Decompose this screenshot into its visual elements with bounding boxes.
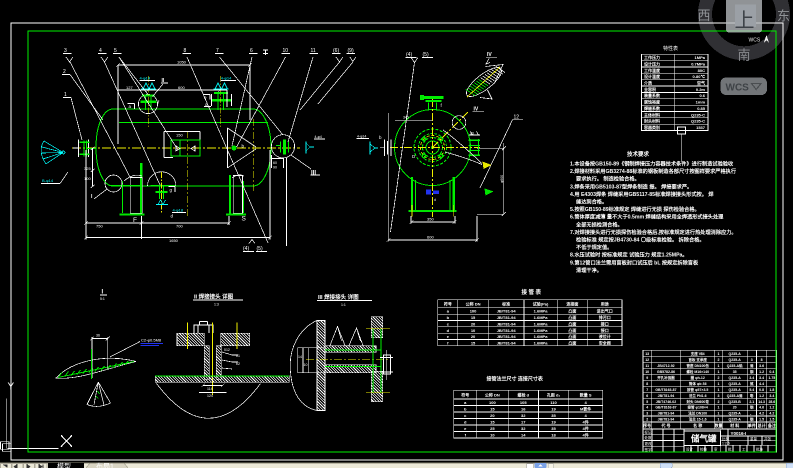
svg-text:1.8: 1.8 bbox=[769, 388, 774, 392]
svg-text:Q235-A: Q235-A bbox=[729, 352, 742, 356]
svg-text:接 管 表: 接 管 表 bbox=[522, 288, 542, 296]
svg-text:δ12: δ12 bbox=[224, 348, 230, 352]
svg-text:0.8: 0.8 bbox=[759, 388, 764, 392]
svg-text:凸面: 凸面 bbox=[568, 308, 576, 314]
svg-text:Q235-A焉: Q235-A焉 bbox=[727, 393, 743, 398]
svg-text:钢: 钢 bbox=[750, 369, 754, 374]
svg-text:封头 DN600弯: 封头 DN600弯 bbox=[687, 399, 710, 404]
svg-text:2.焊接材料采用GB3274-88标准的钢板制造各部尺寸按图: 2.焊接材料采用GB3274-88标准的钢板制造各部尺寸按图样要求严格执行 bbox=[570, 167, 737, 175]
svg-text:350: 350 bbox=[427, 217, 434, 222]
svg-text:西: 西 bbox=[697, 8, 710, 23]
svg-text:共张: 共张 bbox=[764, 436, 772, 441]
svg-text:要求执行。 制造检验合格。: 要求执行。 制造检验合格。 bbox=[576, 175, 640, 183]
svg-text:钢: 钢 bbox=[750, 405, 754, 410]
svg-text:S: S bbox=[242, 216, 247, 223]
svg-text:100: 100 bbox=[489, 400, 496, 405]
svg-text:1.6MPa: 1.6MPa bbox=[534, 328, 549, 333]
svg-text:1.6MPa: 1.6MPa bbox=[534, 340, 549, 345]
svg-text:南: 南 bbox=[737, 48, 750, 63]
svg-text:凸面: 凸面 bbox=[568, 333, 576, 339]
svg-text:16: 16 bbox=[521, 407, 526, 412]
svg-text:特性表: 特性表 bbox=[663, 45, 678, 52]
svg-text:1.2: 1.2 bbox=[759, 394, 764, 398]
svg-text:Q235-A焰: Q235-A焰 bbox=[727, 363, 743, 368]
svg-text:JB/T4746-02: JB/T4746-02 bbox=[656, 400, 676, 404]
svg-text:数量 S: 数量 S bbox=[579, 391, 592, 397]
svg-text:100: 100 bbox=[470, 309, 477, 314]
svg-text:M套件: M套件 bbox=[580, 406, 591, 412]
svg-text:1: 1 bbox=[718, 406, 720, 410]
svg-text:1: 1 bbox=[718, 418, 720, 422]
svg-text:Q235-A: Q235-A bbox=[729, 388, 742, 392]
svg-text:工作压力: 工作压力 bbox=[644, 54, 660, 60]
svg-text:法兰 DN100: 法兰 DN100 bbox=[688, 411, 707, 416]
svg-text:114: 114 bbox=[207, 387, 213, 391]
svg-text:11: 11 bbox=[311, 48, 316, 54]
svg-text:14: 14 bbox=[521, 433, 526, 438]
svg-text:15: 15 bbox=[471, 340, 476, 345]
svg-text:9.第12管口法兰需用盲板封口试压后 bL: 9.第12管口法兰需用盲板封口试压后 bL 按规定拆除盲板 bbox=[570, 258, 699, 266]
svg-text:钢: 钢 bbox=[750, 417, 754, 422]
svg-text:C2-φ0.5M8: C2-φ0.5M8 bbox=[141, 338, 162, 343]
svg-text:接管法兰尺寸 连接尺寸表: 接管法兰尺寸 连接尺寸表 bbox=[486, 376, 544, 383]
svg-text:备注: 备注 bbox=[767, 422, 776, 428]
svg-text:1.6MPa: 1.6MPa bbox=[534, 315, 549, 320]
svg-text:容器类别: 容器类别 bbox=[643, 124, 660, 130]
svg-text:2: 2 bbox=[718, 358, 720, 362]
svg-text:Q235-C: Q235-C bbox=[691, 112, 705, 117]
svg-text:WCS: WCS bbox=[749, 38, 761, 44]
svg-text:更改: 更改 bbox=[645, 441, 653, 446]
svg-text:嘭: 嘭 bbox=[750, 393, 754, 398]
svg-text:GB/T8163-87: GB/T8163-87 bbox=[655, 388, 676, 392]
svg-text:d: d bbox=[434, 198, 436, 202]
svg-text:清理干净。: 清理干净。 bbox=[576, 266, 602, 274]
svg-text:32: 32 bbox=[521, 413, 526, 418]
svg-text:II 焊接接头 详图: II 焊接接头 详图 bbox=[194, 293, 234, 301]
svg-text:Q235-A: Q235-A bbox=[729, 418, 742, 422]
svg-text:110: 110 bbox=[550, 400, 557, 405]
svg-text:15: 15 bbox=[490, 420, 495, 425]
svg-text:4-φ14: 4-φ14 bbox=[357, 135, 366, 139]
svg-text:JB/T81-94: JB/T81-94 bbox=[497, 315, 517, 320]
svg-text:12: 12 bbox=[645, 358, 649, 362]
svg-text:Q235-B: Q235-B bbox=[729, 400, 742, 404]
svg-text:液位计: 液位计 bbox=[599, 333, 611, 339]
svg-text:设计: 设计 bbox=[686, 447, 694, 452]
svg-text:9: 9 bbox=[646, 376, 648, 380]
svg-text:处数: 处数 bbox=[645, 435, 653, 440]
svg-text:35: 35 bbox=[733, 370, 737, 374]
svg-text:1.5: 1.5 bbox=[759, 418, 764, 422]
svg-text:1: 1 bbox=[718, 364, 720, 368]
svg-text:(4): (4) bbox=[243, 246, 249, 252]
svg-text:20: 20 bbox=[490, 413, 495, 418]
svg-text:(5): (5) bbox=[423, 52, 429, 58]
svg-text:10: 10 bbox=[645, 370, 649, 374]
svg-text:6.筒体厚度减薄 量不大于0.5mm 焊缝结构采用全焊透形式: 6.筒体厚度减薄 量不大于0.5mm 焊缝结构采用全焊透形式接头处理 bbox=[570, 213, 724, 221]
svg-text:3: 3 bbox=[751, 358, 753, 362]
svg-text:储气罐: 储气罐 bbox=[690, 434, 717, 444]
svg-text:1: 1 bbox=[64, 92, 67, 98]
svg-text:2: 2 bbox=[718, 400, 720, 404]
svg-text:凸面: 凸面 bbox=[568, 327, 576, 333]
svg-text:3.焊条采用GB5103-87型焊条制造 振。 焊: 3.焊条采用GB5103-87型焊条制造 振。 焊接要求严。 bbox=[570, 182, 692, 190]
svg-text:支座 Ⅶ4: 支座 Ⅶ4 bbox=[690, 351, 705, 356]
svg-text:JB/T81-94: JB/T81-94 bbox=[497, 334, 517, 339]
svg-text:III: III bbox=[311, 171, 316, 177]
svg-text:1650: 1650 bbox=[169, 238, 179, 243]
svg-text:JB/T81-94: JB/T81-94 bbox=[497, 328, 517, 333]
svg-text:36: 36 bbox=[96, 334, 100, 338]
svg-text:1: 1 bbox=[718, 412, 720, 416]
svg-text:腐蚀裕度: 腐蚀裕度 bbox=[644, 99, 661, 105]
svg-text:全容积: 全容积 bbox=[643, 86, 656, 92]
svg-text:(9): (9) bbox=[348, 48, 354, 54]
svg-text:10: 10 bbox=[490, 433, 495, 438]
svg-text:校核: 校核 bbox=[700, 447, 708, 452]
svg-text:1050: 1050 bbox=[177, 60, 187, 65]
svg-text:5:1: 5:1 bbox=[100, 297, 105, 301]
svg-text:4.6: 4.6 bbox=[759, 406, 764, 410]
svg-text:φ600: φ600 bbox=[500, 175, 504, 183]
svg-text:0.2m: 0.2m bbox=[696, 87, 706, 92]
svg-text:1.2: 1.2 bbox=[769, 406, 774, 410]
svg-text:(6): (6) bbox=[333, 48, 339, 54]
svg-text:JB/T81-94: JB/T81-94 bbox=[658, 412, 675, 416]
svg-text:7: 7 bbox=[646, 388, 648, 392]
svg-text:4件: 4件 bbox=[583, 432, 589, 438]
svg-text:0.7MPa: 0.7MPa bbox=[691, 61, 706, 66]
svg-text:设计压力: 设计压力 bbox=[644, 60, 660, 66]
svg-text:工: 工 bbox=[742, 448, 746, 452]
svg-text:公称 DN: 公称 DN bbox=[466, 301, 481, 307]
svg-text:进出气口: 进出气口 bbox=[597, 308, 613, 314]
svg-text:1: 1 bbox=[718, 388, 720, 392]
svg-text:5: 5 bbox=[646, 400, 648, 404]
svg-text:GB/T8163-87: GB/T8163-87 bbox=[655, 406, 676, 410]
svg-text:17: 17 bbox=[521, 420, 526, 425]
svg-text:1mm: 1mm bbox=[696, 100, 706, 105]
svg-text:13: 13 bbox=[645, 352, 649, 356]
svg-text:5.按照GB150-89标准规定 焊缝进行无损 探伤检验合格: 5.按照GB150-89标准规定 焊缝进行无损 探伤检验合格。 bbox=[570, 205, 700, 213]
svg-text:不低于规定值。: 不低于规定值。 bbox=[576, 243, 612, 251]
svg-text:孔距 d₁: 孔距 d₁ bbox=[547, 391, 561, 397]
svg-text:325: 325 bbox=[84, 166, 91, 171]
svg-text:Q235-A: Q235-A bbox=[729, 376, 742, 380]
svg-text:比例: 比例 bbox=[722, 436, 730, 441]
svg-text:重量: 重量 bbox=[750, 436, 758, 441]
svg-text:6: 6 bbox=[646, 394, 648, 398]
svg-text:螺栓 d: 螺栓 d bbox=[517, 391, 529, 397]
svg-text:1.75: 1.75 bbox=[768, 376, 775, 380]
svg-text:接口: 接口 bbox=[601, 327, 609, 333]
svg-text:100: 100 bbox=[84, 176, 91, 181]
svg-text:8.水压试验时 按标准规定 试验压力 规定1.25MPa。: 8.水压试验时 按标准规定 试验压力 规定1.25MPa。 bbox=[570, 251, 688, 259]
svg-text:JB/T81-94: JB/T81-94 bbox=[497, 340, 517, 345]
svg-text:4-φ18: 4-φ18 bbox=[173, 208, 184, 213]
svg-text:35: 35 bbox=[551, 426, 556, 431]
svg-text:JB/T81-94: JB/T81-94 bbox=[658, 394, 675, 398]
svg-text:1:2.5: 1:2.5 bbox=[722, 442, 730, 446]
svg-text:开孔补强圈: 开孔补强圈 bbox=[657, 375, 675, 380]
svg-text:0.6: 0.6 bbox=[699, 93, 705, 98]
svg-text:20: 20 bbox=[471, 321, 476, 326]
svg-text:主体材料: 主体材料 bbox=[644, 111, 660, 117]
svg-text:4-φ14: 4-φ14 bbox=[221, 76, 232, 81]
svg-text:1.5: 1.5 bbox=[769, 418, 774, 422]
svg-text:0-80℃: 0-80℃ bbox=[693, 74, 706, 79]
svg-text:4: 4 bbox=[646, 406, 648, 410]
svg-text:105: 105 bbox=[520, 400, 527, 405]
svg-text:8: 8 bbox=[184, 48, 187, 54]
svg-text:19: 19 bbox=[551, 420, 556, 425]
svg-text:4.2: 4.2 bbox=[759, 412, 764, 416]
svg-text:15: 15 bbox=[471, 315, 476, 320]
svg-text:审: 审 bbox=[714, 447, 718, 452]
svg-text:全部无损检测合格。: 全部无损检测合格。 bbox=[575, 220, 623, 228]
svg-text:600: 600 bbox=[178, 85, 185, 90]
svg-text:3: 3 bbox=[646, 412, 648, 416]
svg-text:90: 90 bbox=[470, 132, 474, 136]
svg-text:上: 上 bbox=[735, 9, 755, 32]
svg-text:管座 DN100缶: 管座 DN100缶 bbox=[687, 363, 710, 368]
svg-text:JB/T81-94: JB/T81-94 bbox=[497, 321, 517, 326]
svg-text:1.6MPa: 1.6MPa bbox=[534, 309, 549, 314]
svg-text:凸面: 凸面 bbox=[568, 314, 576, 320]
svg-text:7: 7 bbox=[216, 48, 219, 54]
svg-text:2: 2 bbox=[718, 376, 720, 380]
svg-text:1: 1 bbox=[718, 382, 720, 386]
svg-text:单件: 单件 bbox=[748, 422, 756, 428]
svg-text:3: 3 bbox=[718, 394, 720, 398]
svg-text:用途: 用途 bbox=[600, 301, 609, 307]
svg-text:345: 345 bbox=[403, 116, 409, 120]
svg-text:Q235-C: Q235-C bbox=[691, 119, 705, 124]
svg-text:检验标准 规定按JB4730-84 〇级标准检验。: 检验标准 规定按JB4730-84 〇级标准检验。 拆除合格。 bbox=[576, 236, 705, 244]
svg-text:b1: b1 bbox=[236, 354, 240, 358]
svg-text:JB4712-92: JB4712-92 bbox=[657, 364, 674, 368]
svg-text:接口: 接口 bbox=[601, 320, 609, 326]
svg-text:35: 35 bbox=[551, 413, 556, 418]
svg-text:焉: 焉 bbox=[750, 363, 754, 368]
svg-text:代 号: 代 号 bbox=[660, 422, 670, 428]
svg-text:1: 1 bbox=[718, 352, 720, 356]
svg-text:Y0016-I: Y0016-I bbox=[731, 431, 747, 436]
svg-text:筒体 φb δ6: 筒体 φb δ6 bbox=[689, 381, 707, 386]
svg-text:150: 150 bbox=[176, 133, 183, 138]
svg-text:煞: 煞 bbox=[750, 381, 754, 386]
svg-text:4.2: 4.2 bbox=[769, 412, 774, 416]
svg-text:750: 750 bbox=[96, 224, 103, 229]
svg-text:2.1: 2.1 bbox=[749, 400, 754, 404]
svg-text:盲板 支承座: 盲板 支承座 bbox=[688, 357, 707, 362]
svg-text:装量系数: 装量系数 bbox=[643, 92, 660, 98]
svg-text:600: 600 bbox=[427, 235, 434, 240]
svg-text:10: 10 bbox=[471, 328, 476, 333]
svg-text:数量: 数量 bbox=[714, 422, 723, 428]
svg-text:11: 11 bbox=[645, 364, 649, 368]
svg-text:批准: 批准 bbox=[756, 447, 764, 452]
svg-text:10: 10 bbox=[304, 363, 308, 367]
svg-text:螺栓 M16×140: 螺栓 M16×140 bbox=[686, 369, 709, 374]
svg-text:Q235-A: Q235-A bbox=[729, 382, 742, 386]
svg-text:排污口: 排污口 bbox=[599, 314, 611, 320]
svg-text:(4): (4) bbox=[406, 52, 412, 58]
svg-text:90: 90 bbox=[273, 166, 277, 170]
svg-text:标准: 标准 bbox=[501, 301, 510, 307]
svg-text:700: 700 bbox=[176, 224, 183, 229]
svg-text:技术要求: 技术要求 bbox=[627, 150, 650, 158]
svg-text:公称 DN: 公称 DN bbox=[485, 391, 500, 397]
svg-text:19: 19 bbox=[551, 407, 556, 412]
svg-text:4-φ4: 4-φ4 bbox=[315, 135, 322, 139]
svg-text:0.85: 0.85 bbox=[697, 106, 706, 111]
svg-text:3.6: 3.6 bbox=[759, 364, 764, 368]
svg-text:60: 60 bbox=[273, 161, 277, 165]
svg-text:圈 φh-12: 圈 φh-12 bbox=[691, 375, 705, 380]
svg-text:凸面: 凸面 bbox=[568, 320, 576, 326]
svg-text:工作温度: 工作温度 bbox=[644, 67, 661, 73]
svg-text:标记: 标记 bbox=[645, 429, 653, 434]
svg-text:焊缝系数: 焊缝系数 bbox=[644, 105, 660, 111]
svg-text:连接面: 连接面 bbox=[566, 301, 578, 307]
svg-text:法兰 15-1.6: 法兰 15-1.6 bbox=[689, 417, 707, 422]
svg-text:东: 东 bbox=[777, 9, 790, 24]
svg-text:B-φ14: B-φ14 bbox=[42, 178, 54, 183]
svg-text:3.4: 3.4 bbox=[769, 394, 774, 398]
svg-text:14.3: 14.3 bbox=[758, 400, 765, 404]
svg-text:3.4: 3.4 bbox=[749, 376, 754, 380]
svg-text:安全阀: 安全阀 bbox=[599, 339, 611, 345]
svg-text:124: 124 bbox=[207, 394, 213, 398]
svg-text:8: 8 bbox=[761, 358, 763, 362]
svg-text:4.用 E4303焊条 焊缝采用GB5117-85标准焊接接: 4.用 E4303焊条 焊缝采用GB5117-85标准焊接接头形式按。 焊 bbox=[570, 190, 714, 198]
svg-text:2: 2 bbox=[646, 418, 648, 422]
svg-text:JB/T81-94: JB/T81-94 bbox=[658, 418, 675, 422]
svg-text:介质: 介质 bbox=[643, 80, 652, 86]
svg-text:名 称: 名 称 bbox=[693, 422, 702, 428]
svg-text:批: 批 bbox=[728, 447, 732, 452]
svg-text:设计温度: 设计温度 bbox=[644, 73, 661, 79]
svg-text:总计: 总计 bbox=[758, 422, 766, 428]
svg-text:10: 10 bbox=[283, 48, 289, 54]
svg-text:4-φ14: 4-φ14 bbox=[140, 76, 151, 81]
svg-text:接管 φ57×3.5: 接管 φ57×3.5 bbox=[687, 387, 708, 392]
svg-text:5: 5 bbox=[114, 48, 117, 54]
svg-text:Y: Y bbox=[8, 382, 15, 393]
svg-text:试验(Pa): 试验(Pa) bbox=[533, 301, 549, 307]
svg-text:4件: 4件 bbox=[583, 425, 589, 431]
svg-text:(5): (5) bbox=[257, 246, 263, 252]
svg-text:1.本设备按GB150-89《钢制焊接压力容器技术条件》进行: 1.本设备按GB150-89《钢制焊接压力容器技术条件》进行制造试验验收 bbox=[570, 160, 734, 168]
svg-text:JB/T81-94: JB/T81-94 bbox=[497, 309, 517, 314]
svg-text:20: 20 bbox=[471, 334, 476, 339]
svg-text:4.4: 4.4 bbox=[759, 382, 764, 386]
svg-text:2: 2 bbox=[63, 69, 66, 75]
svg-text:WCS: WCS bbox=[726, 83, 750, 94]
svg-text:缝达到合格。: 缝达到合格。 bbox=[576, 198, 607, 206]
svg-text:法兰 PN1.6: 法兰 PN1.6 bbox=[689, 393, 707, 398]
svg-text:25: 25 bbox=[490, 426, 495, 431]
svg-text:1:1: 1:1 bbox=[341, 303, 346, 307]
svg-text:6: 6 bbox=[250, 48, 253, 54]
svg-text:b2: b2 bbox=[236, 362, 240, 366]
svg-text:1.6MPa: 1.6MPa bbox=[534, 321, 549, 326]
svg-text:1.2: 1.2 bbox=[759, 370, 764, 374]
svg-text:0.4: 0.4 bbox=[769, 370, 774, 374]
svg-text:80C: 80C bbox=[698, 68, 705, 73]
svg-text:18: 18 bbox=[551, 433, 556, 438]
svg-text:III 焊接接头 详图: III 焊接接头 详图 bbox=[318, 293, 359, 301]
svg-text:空气: 空气 bbox=[697, 80, 705, 86]
svg-text:20: 20 bbox=[733, 406, 737, 410]
svg-text:1.6MPa: 1.6MPa bbox=[534, 334, 549, 339]
svg-text:1:3: 1:3 bbox=[214, 303, 219, 307]
svg-text:5.4: 5.4 bbox=[749, 388, 754, 392]
svg-text:接管 φ108×4: 接管 φ108×4 bbox=[688, 405, 708, 410]
svg-text:1: 1 bbox=[718, 370, 720, 374]
svg-text:8: 8 bbox=[646, 382, 648, 386]
svg-text:签字: 签字 bbox=[645, 447, 653, 452]
svg-text:127: 127 bbox=[126, 85, 133, 90]
svg-text:序号: 序号 bbox=[642, 422, 651, 428]
svg-text:Q235-A: Q235-A bbox=[729, 412, 742, 416]
svg-text:封头材料: 封头材料 bbox=[644, 118, 660, 124]
svg-text:4: 4 bbox=[99, 48, 102, 54]
svg-text:7.对焊接接头进行无损探伤检验合格后,按标准规定进行热处理消: 7.对焊接接头进行无损探伤检验合格后,按标准规定进行热处理消除应力。 bbox=[570, 228, 737, 236]
svg-text:3: 3 bbox=[64, 48, 67, 54]
svg-text:GB5782-86: GB5782-86 bbox=[657, 370, 675, 374]
svg-text:材 料: 材 料 bbox=[729, 422, 739, 428]
svg-text:、: 、 bbox=[750, 412, 754, 416]
svg-text:3.4: 3.4 bbox=[759, 376, 764, 380]
svg-text:32: 32 bbox=[521, 426, 526, 431]
svg-text:15: 15 bbox=[490, 407, 495, 412]
svg-text:凸面: 凸面 bbox=[568, 339, 576, 345]
svg-text:1537: 1537 bbox=[696, 125, 706, 130]
svg-text:1MPa: 1MPa bbox=[695, 55, 706, 60]
svg-text:28.6: 28.6 bbox=[768, 400, 775, 404]
svg-text:符号: 符号 bbox=[461, 391, 469, 397]
svg-text:14: 14 bbox=[298, 355, 302, 359]
svg-text:4件: 4件 bbox=[583, 419, 589, 425]
svg-text:符号: 符号 bbox=[444, 301, 452, 307]
svg-text:Q235-A: Q235-A bbox=[729, 358, 742, 362]
